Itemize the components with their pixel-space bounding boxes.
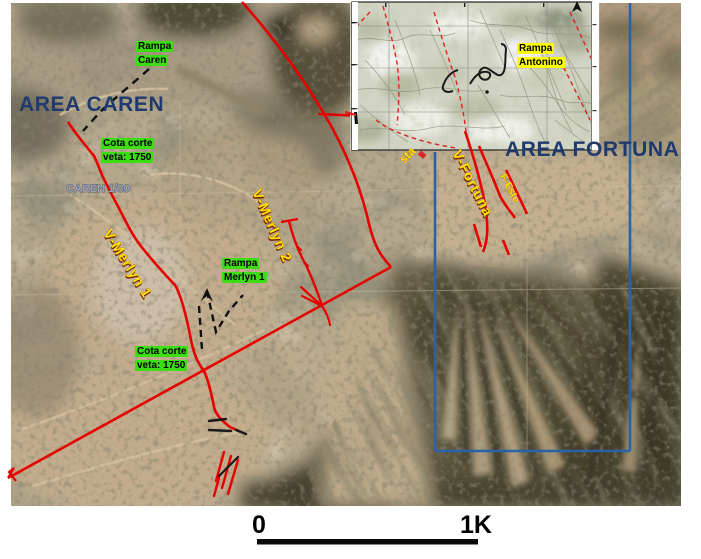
svg-text:CAREN 1/80: CAREN 1/80 <box>66 183 130 195</box>
